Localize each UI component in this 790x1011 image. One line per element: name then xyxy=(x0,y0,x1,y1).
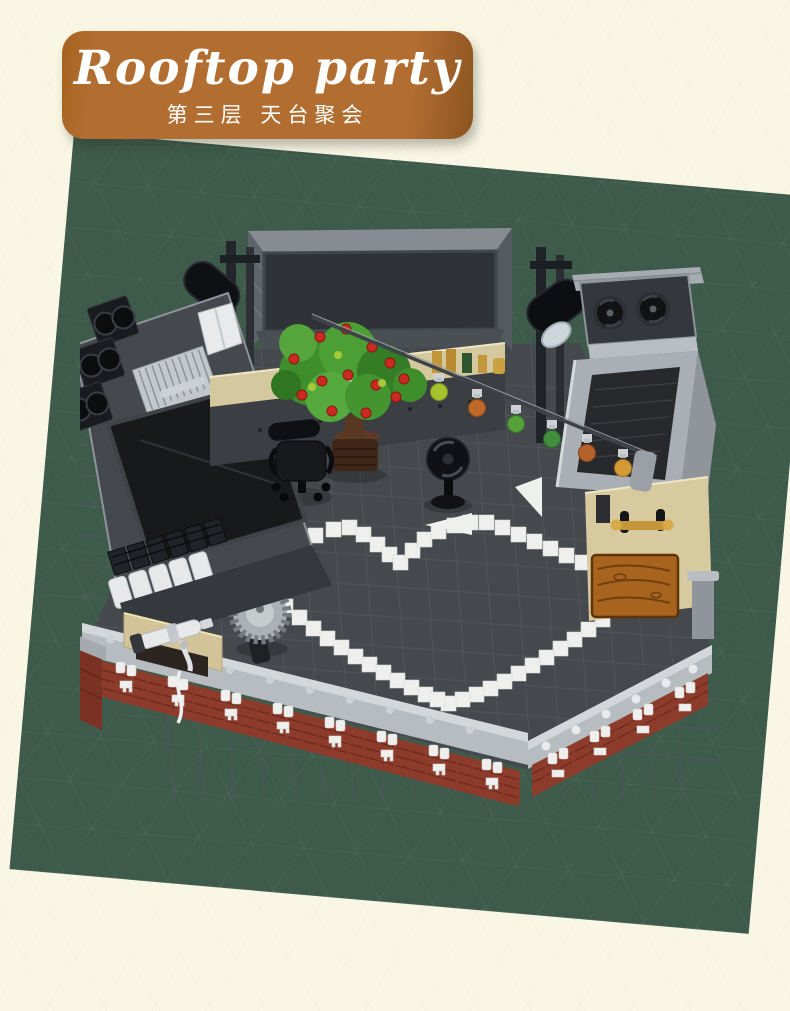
wooden-table xyxy=(592,555,678,617)
title-banner: Rooftop party 第三层 天台聚会 xyxy=(62,31,473,139)
tree-pot xyxy=(332,439,378,471)
page-background: Rooftop party 第三层 天台聚会 xyxy=(0,0,790,1011)
banner-subtitle: 第三层 天台聚会 xyxy=(62,99,473,129)
ac-units xyxy=(580,275,698,359)
banner-title: Rooftop party xyxy=(62,41,473,97)
rooftop-model-photo xyxy=(80,225,720,805)
